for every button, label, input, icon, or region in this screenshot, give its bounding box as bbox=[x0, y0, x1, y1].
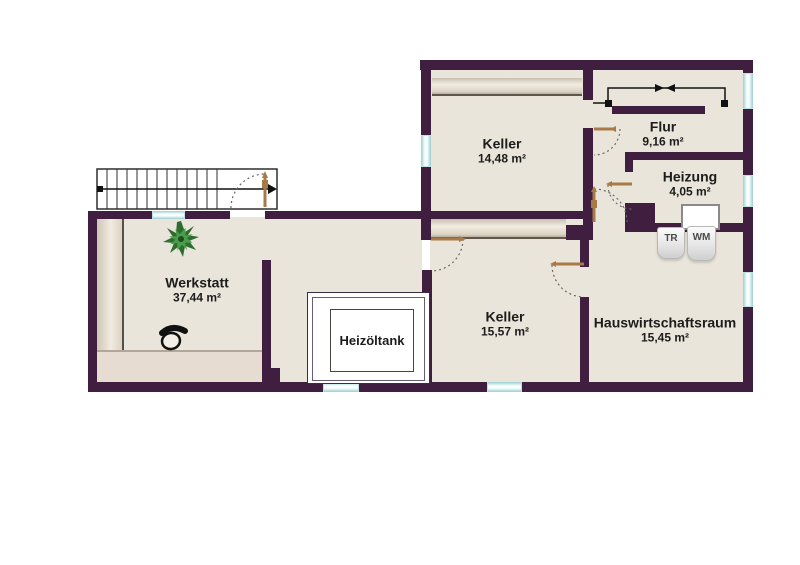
wall-segment bbox=[743, 305, 753, 392]
room-label-hauswirtschaftsraum: Hauswirtschaftsraum 15,45 m² bbox=[594, 316, 736, 345]
wall-segment bbox=[583, 70, 593, 100]
wall-segment bbox=[262, 260, 271, 382]
workbench-werkstatt bbox=[97, 350, 262, 384]
window-icon bbox=[743, 272, 753, 307]
room-label-keller-sued: Keller 15,57 m² bbox=[481, 310, 529, 339]
wall-segment bbox=[625, 152, 743, 160]
wall-segment bbox=[580, 297, 589, 382]
door-swing-icon bbox=[231, 174, 265, 208]
washer: WM bbox=[687, 226, 716, 261]
wall-segment bbox=[88, 211, 97, 392]
oil-tank: Heizöltank bbox=[330, 309, 414, 372]
dryer-label: TR bbox=[664, 233, 677, 244]
washer-label: WM bbox=[693, 232, 711, 243]
staircase-icon bbox=[97, 169, 277, 209]
window-icon bbox=[487, 382, 522, 392]
wall-segment bbox=[520, 382, 753, 392]
wall-segment bbox=[420, 60, 753, 70]
wall-segment bbox=[743, 107, 753, 175]
wall-segment bbox=[625, 152, 633, 172]
wall-segment bbox=[743, 205, 753, 272]
wall-segment bbox=[88, 382, 323, 392]
dryer: TR bbox=[657, 227, 685, 259]
floor-plan: Heizöltank TR WM bbox=[0, 0, 800, 565]
wall-segment bbox=[421, 60, 431, 135]
window-icon bbox=[743, 73, 753, 109]
half-wall-under-stairs bbox=[612, 106, 705, 114]
window-icon bbox=[743, 175, 753, 207]
room-label-flur: Flur 9,16 m² bbox=[642, 120, 683, 149]
shelf-cabinet bbox=[97, 219, 124, 350]
wall-segment bbox=[88, 211, 152, 219]
wall-segment bbox=[271, 368, 280, 382]
workbench-keller-nord bbox=[432, 78, 582, 96]
room-label-werkstatt: Werkstatt 37,44 m² bbox=[165, 276, 229, 305]
oil-tank-label: Heizöltank bbox=[339, 333, 404, 348]
wall-segment bbox=[580, 232, 589, 267]
wall-segment bbox=[183, 211, 230, 219]
room-label-heizung: Heizung 4,05 m² bbox=[663, 170, 717, 199]
room-label-keller-nord: Keller 14,48 m² bbox=[478, 137, 526, 166]
wall-segment bbox=[743, 60, 753, 73]
window-icon bbox=[152, 211, 185, 219]
wall-segment bbox=[583, 223, 591, 232]
window-icon bbox=[421, 135, 431, 167]
wall-segment bbox=[421, 165, 431, 240]
workbench-keller-sued bbox=[430, 219, 566, 239]
